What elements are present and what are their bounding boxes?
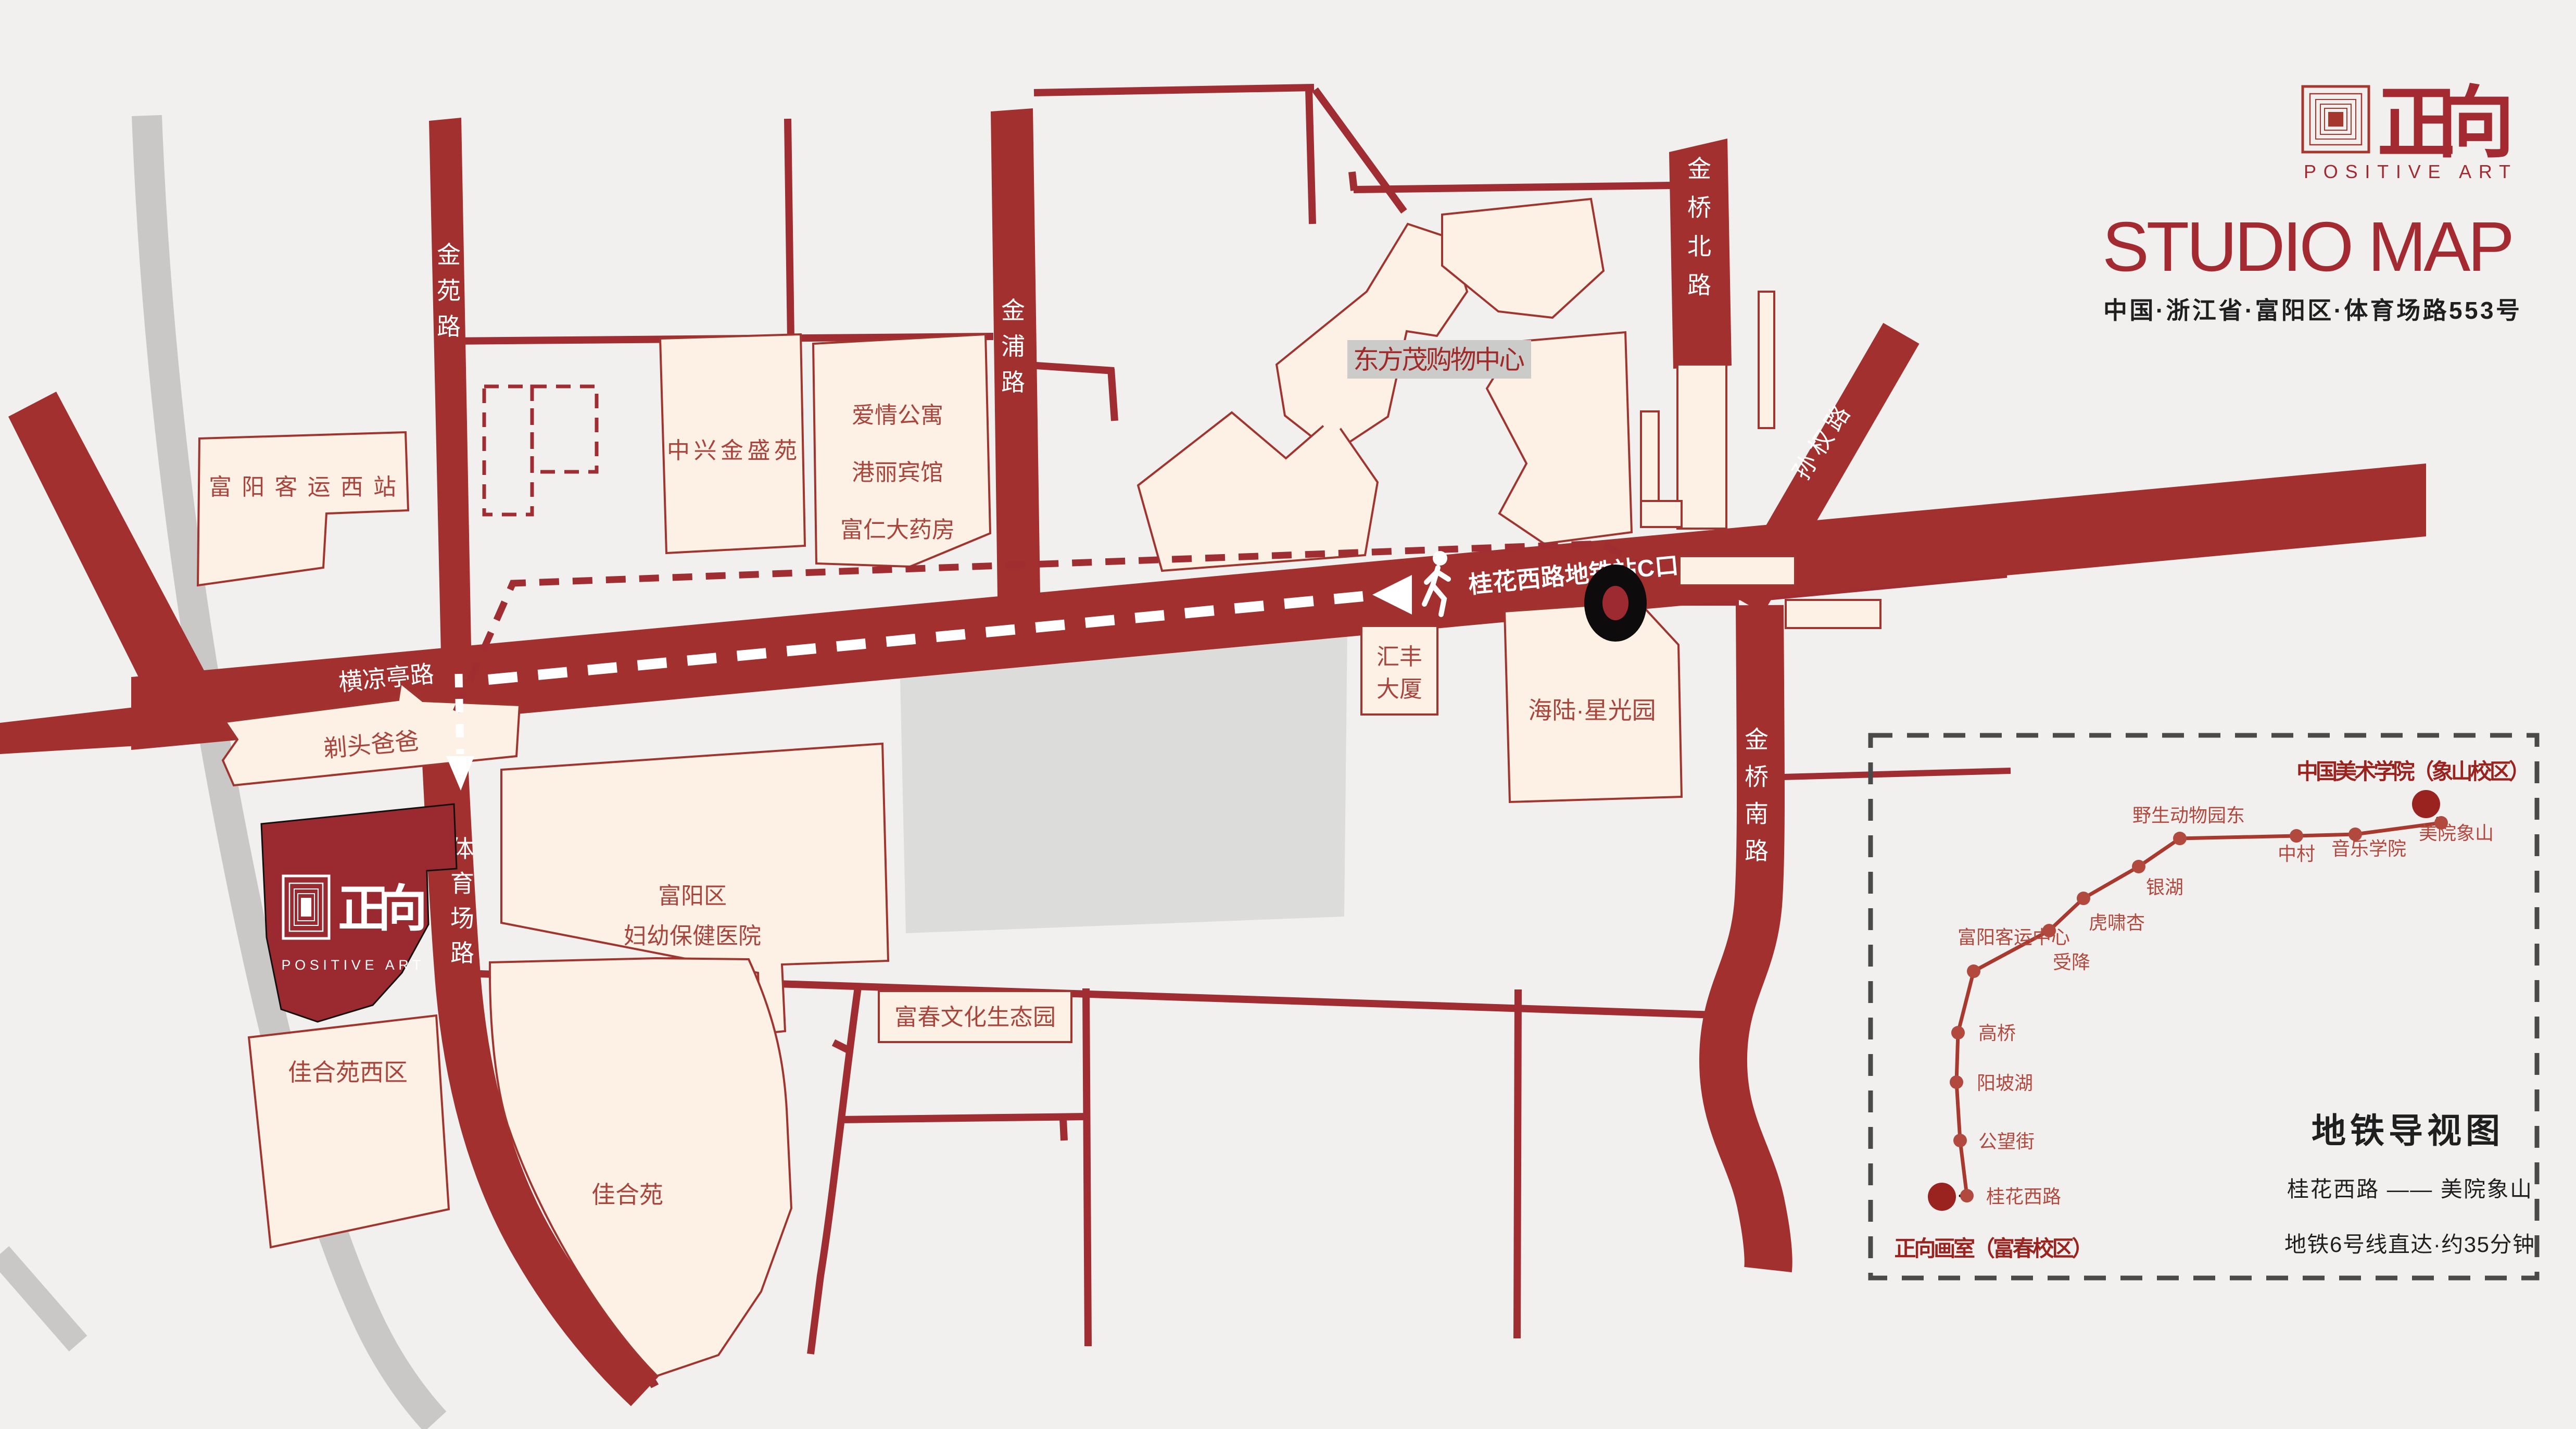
metro-origin-label: 正向画室（富春校区） [1895,1236,2094,1261]
thin-road-vertical-5 [1517,989,1518,1338]
building-label-fuchun-park: 富春文化生态园 [894,1005,1056,1030]
building-label-dongfangmao: 东方茂购物中心 [1353,345,1525,374]
building-label-jiaheyuan-west: 佳合苑西区 [288,1059,408,1086]
studio-map-poster: 桂花西路地铁站C口 东方茂购物中心 富阳客运西站 中兴金盛苑 爱情公寓 港丽宾馆… [0,0,2576,1429]
building-label-furen: 富仁大药房 [840,517,955,543]
metro-exit-marker [1584,565,1647,642]
address: 中国·浙江省·富阳区·体育场路553号 [2103,297,2520,324]
studio-logo-cn: 正向 [338,881,427,937]
page-title: STUDIO MAP [2102,207,2515,286]
station-label-8: 野生动物园东 [2132,805,2245,826]
station-label-1: 公望街 [1978,1131,2035,1152]
station-label-2: 阳坡湖 [1977,1072,2033,1094]
studio-logo-en: POSITIVE ART [282,957,425,973]
building-label-huifeng-1: 汇丰 [1377,644,1422,670]
gray-block [900,629,1347,933]
road-label-jinyuan: 金苑路 [437,241,461,340]
station-label-7: 银湖 [2146,876,2183,898]
station-label-3: 高桥 [1978,1022,2016,1044]
road-label-jinpu: 金浦路 [1001,297,1025,396]
building-jiaheyuan-west [249,1016,449,1247]
metro-panel-title: 地铁导视图 [2312,1111,2507,1150]
building-label-zhongxing: 中兴金盛苑 [667,438,797,463]
origin-dot [1928,1183,1956,1211]
station-label-0: 桂花西路 [1986,1186,2061,1207]
building-label-huifeng-2: 大厦 [1377,676,1422,702]
thin-road-top [1034,87,1314,93]
building-label-hospital-1: 富阳区 [658,883,727,909]
logo-cn: 正向 [2377,79,2515,167]
thin-road-vertical-2 [1309,89,1312,224]
building-label-aiqing: 爱情公寓 [852,403,943,428]
station-label-5: 受降 [2053,951,2090,973]
station-label-11: 美院象山 [2419,822,2494,844]
building-label-hospital-2: 妇幼保健医院 [624,923,761,949]
building-label-jiaheyuan: 佳合苑 [591,1181,663,1208]
station-label-10: 音乐学院 [2331,838,2406,859]
station-label-4: 富阳客运中心 [1958,926,2070,948]
station-label-9: 中村 [2278,843,2315,864]
destination-dot [2412,790,2440,818]
logo-en: POSITIVE ART [2304,161,2517,182]
station-label-6: 虎啸杏 [2089,912,2145,933]
thin-road-vertical-4 [1086,988,1088,1346]
building-label-gangli: 港丽宾馆 [852,460,943,485]
metro-destination-label: 中国美术学院（象山校区） [2296,759,2531,784]
thin-road-vertical-1 [788,119,791,340]
metro-note: 地铁6号线直达·约35分钟 [2284,1232,2534,1257]
building-label-hailu: 海陆·星光园 [1528,697,1656,724]
